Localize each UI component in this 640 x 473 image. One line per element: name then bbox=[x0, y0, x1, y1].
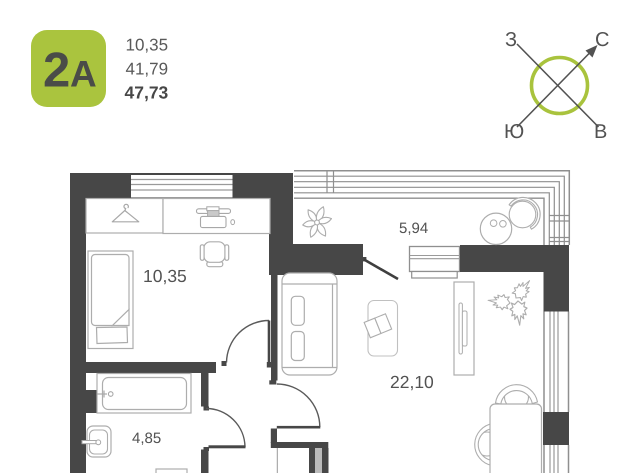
svg-text:22,10: 22,10 bbox=[390, 372, 434, 392]
svg-text:4,85: 4,85 bbox=[132, 430, 161, 447]
svg-text:10,35: 10,35 bbox=[126, 36, 169, 55]
svg-text:2: 2 bbox=[43, 44, 70, 98]
svg-text:5,94: 5,94 bbox=[399, 220, 428, 237]
svg-text:С: С bbox=[595, 29, 609, 51]
svg-text:47,73: 47,73 bbox=[125, 83, 169, 103]
svg-text:10,35: 10,35 bbox=[143, 266, 187, 286]
svg-text:З: З bbox=[505, 29, 517, 51]
svg-text:41,79: 41,79 bbox=[126, 60, 169, 79]
svg-text:В: В bbox=[594, 121, 607, 143]
svg-text:А: А bbox=[70, 54, 97, 95]
svg-text:Ю: Ю bbox=[504, 121, 524, 143]
